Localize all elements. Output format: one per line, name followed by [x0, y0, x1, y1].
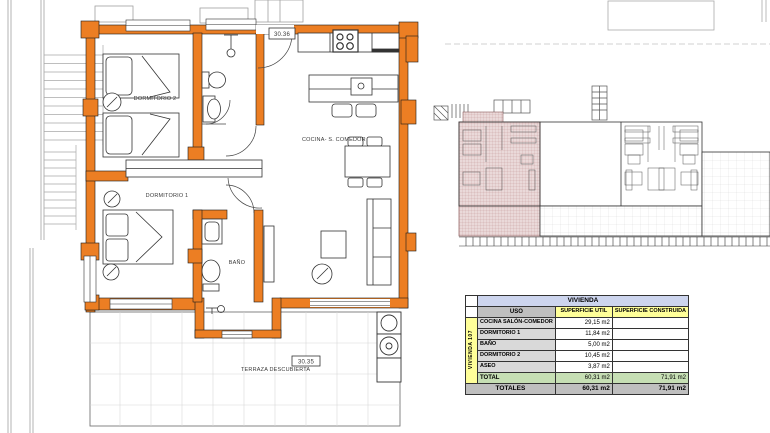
row-group-label: VIVIENDA 107 — [466, 318, 478, 384]
table-row: ASEO 3,87 m2 — [466, 362, 689, 373]
sofa — [367, 199, 391, 285]
bedroom2-furniture — [103, 54, 179, 157]
cell-util: 11,84 m2 — [555, 329, 612, 340]
cell-util: 29,15 m2 — [555, 318, 612, 329]
room-label-terraza: TERRAZA DESCUBIERTA — [241, 367, 310, 373]
col-header-uso: USO — [478, 307, 556, 318]
room-label-dormitorio2: DORMITORIO 2 — [134, 96, 177, 102]
terrace-sink — [377, 312, 401, 334]
table-totales-row: TOTALES 60,31 m2 71,91 m2 — [466, 384, 689, 395]
room-label-bano: BAÑO — [229, 259, 246, 266]
coffee-table — [321, 231, 346, 258]
terrace-area-tag: 30.35 — [292, 356, 320, 366]
table-header-row: USO SUPERFICIE UTIL SUPERFICIE CONSTRUID… — [466, 307, 689, 318]
site-key-plan — [434, 0, 770, 246]
shower-tray — [203, 96, 221, 122]
totales-construida: 71,91 m2 — [612, 384, 688, 395]
cell-construida — [612, 340, 688, 351]
nightstand-lamp — [103, 93, 121, 111]
cell-construida — [612, 318, 688, 329]
cell-construida — [612, 362, 688, 373]
dining-set — [345, 137, 390, 187]
room-label-dormitorio1: DORMITORIO 1 — [146, 193, 189, 199]
cell-uso: BAÑO — [478, 340, 556, 351]
nightstand-lamp — [103, 264, 119, 280]
key-plan-context — [445, 0, 770, 44]
toilet-icon — [202, 260, 220, 291]
double-bed — [103, 210, 173, 264]
stool — [356, 104, 376, 117]
entry-tag: 30.36 — [269, 28, 295, 39]
single-bed-2 — [103, 113, 179, 157]
shower-icon — [224, 35, 238, 57]
nightstand-lamp — [104, 191, 120, 207]
total-label: TOTAL — [478, 373, 556, 384]
floor-lamp — [312, 264, 332, 284]
architectural-drawing-sheet: TERRAZA DESCUBIERTA 30.35 — [0, 0, 770, 433]
table-row: BAÑO 5,00 m2 — [466, 340, 689, 351]
bathroom-fixtures — [202, 219, 222, 291]
cell-uso: DORMITORIO 2 — [478, 351, 556, 362]
terrace-cabinet — [377, 358, 401, 382]
single-bed-1 — [103, 54, 179, 98]
highlighted-unit-entry — [463, 112, 503, 122]
svg-text:30.36: 30.36 — [274, 32, 290, 38]
cell-construida — [612, 351, 688, 362]
kitchen-island — [309, 75, 398, 102]
stool — [332, 104, 352, 117]
svg-text:30.35: 30.35 — [298, 360, 314, 366]
kitchen-furniture — [264, 30, 399, 285]
cell-util: 5,00 m2 — [555, 340, 612, 351]
cell-uso: DORMITORIO 1 — [478, 329, 556, 340]
table-row: DORMITORIO 1 11,84 m2 — [466, 329, 689, 340]
tv-unit — [264, 226, 274, 282]
corner-blank — [466, 307, 478, 318]
toilet-icon — [202, 72, 226, 88]
bedroom1-furniture — [103, 191, 173, 280]
cell-util: 3,87 m2 — [555, 362, 612, 373]
washing-machine — [377, 334, 401, 358]
aseo-shower-icon — [206, 306, 225, 315]
col-header-construida: SUPERFICIE CONSTRUIDA — [612, 307, 688, 318]
table-row: DORMITORIO 2 10,45 m2 — [466, 351, 689, 362]
room-label-cocina: COCINA- S. COMEDOR — [302, 137, 366, 143]
stove-icon — [333, 30, 358, 52]
total-util: 60,31 m2 — [555, 373, 612, 384]
cell-uso: COCINA SALÓN-COMEDOR — [478, 318, 556, 329]
table-title-row: VIVIENDA — [466, 296, 689, 307]
table-title: VIVIENDA — [478, 296, 689, 307]
totales-util: 60,31 m2 — [555, 384, 612, 395]
highlighted-unit-terrace — [459, 206, 540, 236]
total-construida: 71,91 m2 — [612, 373, 688, 384]
key-plan-fence — [459, 237, 770, 246]
sink-icon — [202, 219, 222, 244]
cell-construida — [612, 329, 688, 340]
cell-uso: ASEO — [478, 362, 556, 373]
corner-blank — [466, 296, 478, 307]
wardrobe — [126, 160, 262, 177]
key-plan-stairs — [434, 86, 607, 120]
col-header-util: SUPERFICIE UTIL — [555, 307, 612, 318]
cell-util: 10,45 m2 — [555, 351, 612, 362]
terrace: TERRAZA DESCUBIERTA 30.35 — [90, 312, 401, 426]
table-row: VIVIENDA 107 COCINA SALÓN-COMEDOR 29,15 … — [466, 318, 689, 329]
totales-label: TOTALES — [466, 384, 556, 395]
door-swings — [202, 34, 292, 213]
superficies-table: VIVIENDA USO SUPERFICIE UTIL SUPERFICIE … — [465, 295, 689, 395]
table-total-row: TOTAL 60,31 m2 71,91 m2 — [466, 373, 689, 384]
top-bath-fixtures — [202, 35, 238, 122]
